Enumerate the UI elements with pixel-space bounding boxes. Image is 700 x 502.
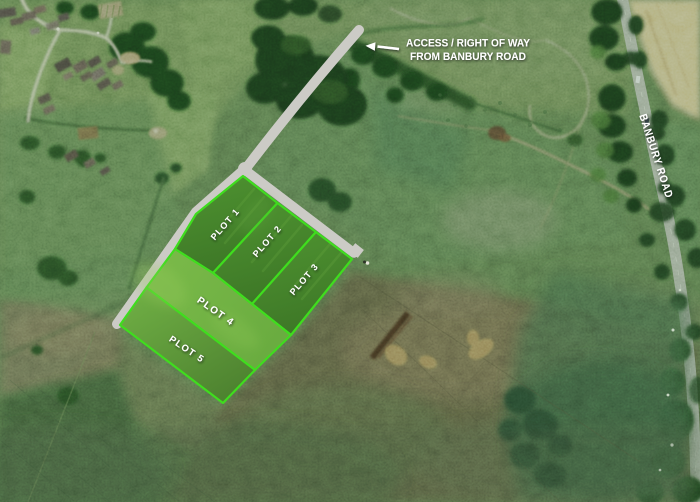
svg-text:FROM BANBURY ROAD: FROM BANBURY ROAD xyxy=(410,51,526,63)
svg-text:ACCESS / RIGHT OF WAY: ACCESS / RIGHT OF WAY xyxy=(406,38,531,50)
